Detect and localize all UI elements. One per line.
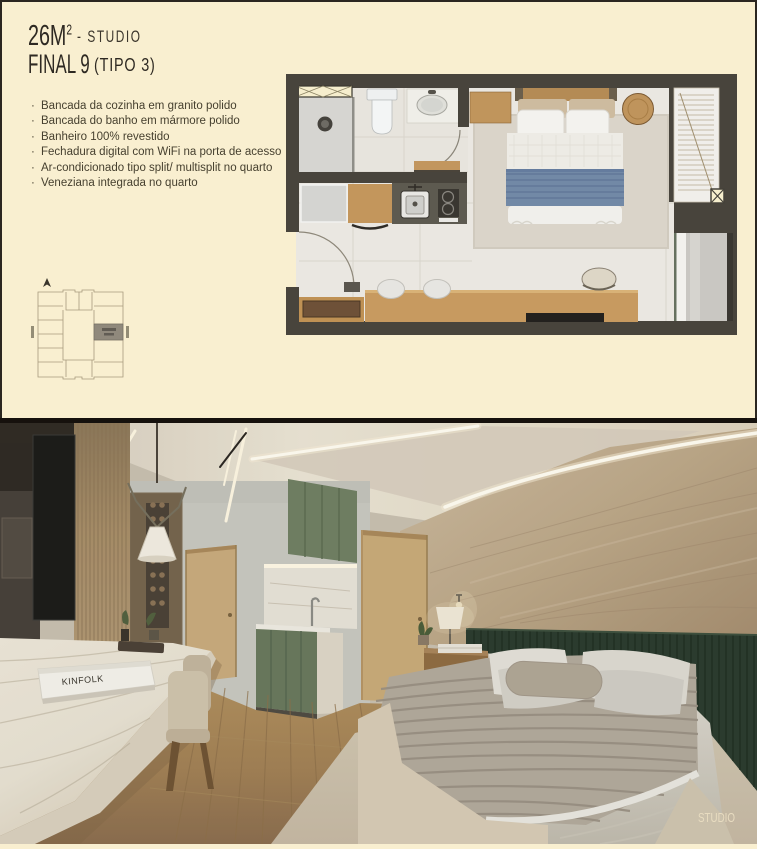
svg-text:STUDIO: STUDIO <box>698 810 735 825</box>
